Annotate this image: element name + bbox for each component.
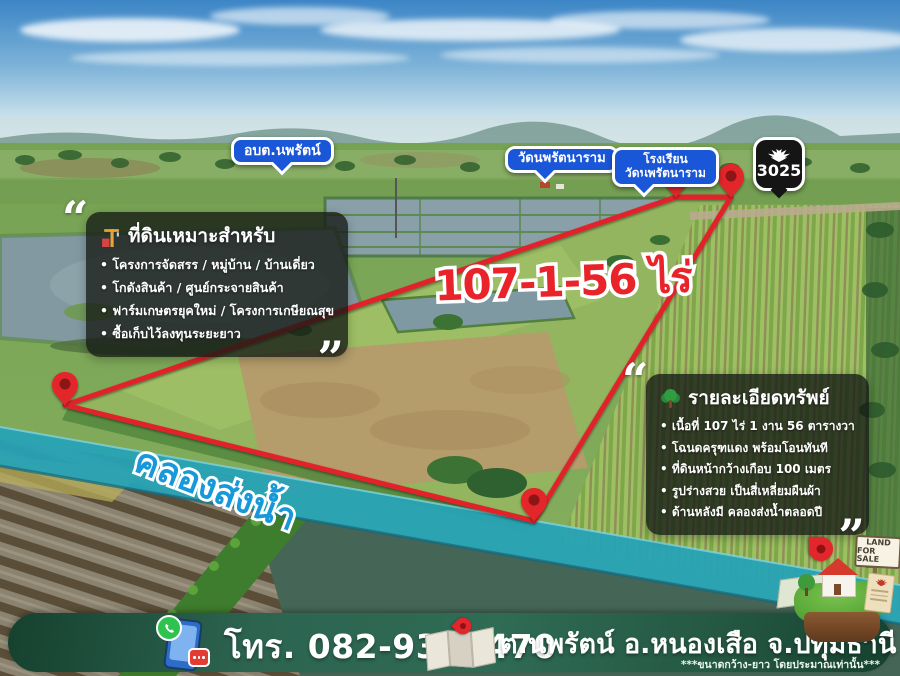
panel-title: รายละเอียดทรัพย์ — [688, 383, 830, 413]
contact-bar: โทร. 082-9385470 ต.นพรัตน์ อ.หนองเสือ จ.… — [8, 613, 892, 672]
title-deed-icon — [864, 572, 895, 613]
map-label-text: โรงเรียน — [625, 153, 706, 167]
tree-icon — [660, 388, 681, 409]
quote-close-icon: ” — [318, 340, 344, 377]
crane-icon — [100, 226, 121, 247]
area-size-text: 107-1-56 ไร่ — [433, 252, 694, 310]
map-pin-icon — [809, 537, 833, 561]
list-item: ด้านหลังมี คลองส่งน้ำตลอดปี — [660, 503, 855, 522]
call-badge-icon — [156, 615, 182, 641]
canal-label: คลองส่งน้ำ — [129, 434, 305, 540]
map-label-text: วัดนพรัตนาราม — [625, 167, 706, 181]
map-label-school: โรงเรียน วัดนพรัตนาราม — [612, 147, 719, 194]
map-label-obt: อบต.นพรัตน์ — [231, 137, 334, 172]
list-item: โฉนดครุฑแดง พร้อมโอนทันที — [660, 439, 855, 458]
island-soil — [804, 612, 880, 642]
property-details-panel: “ รายละเอียดทรัพย์ เนื้อที่ 107 ไร่ 1 งา… — [646, 374, 869, 535]
list-item: โกดังสินค้า / ศูนย์กระจายสินค้า — [100, 278, 334, 298]
smartphone-icon — [156, 617, 208, 669]
land-sale-illustration: LAND FOR SALE — [778, 530, 900, 650]
land-for-sale-sign: LAND FOR SALE — [854, 535, 900, 569]
chat-badge-icon — [188, 648, 210, 667]
quote-open-icon: “ — [62, 200, 88, 237]
panel-title: ที่ดินเหมาะสำหรับ — [128, 221, 275, 251]
map-label-text: วัดนพรัตนาราม — [505, 146, 619, 173]
map-icon — [426, 619, 490, 667]
route-number: 3025 — [757, 163, 802, 179]
list-item: เนื้อที่ 107 ไร่ 1 งาน 56 ตารางวา — [660, 417, 855, 436]
route-shield: 3025 — [753, 137, 805, 196]
map-label-temple: วัดนพรัตนาราม — [505, 146, 619, 180]
list-item: ฟาร์มเกษตรยุคใหม่ / โครงการเกษียณสุข — [100, 301, 334, 321]
sign-line2: FOR SALE — [856, 547, 899, 567]
canal-label-overlay: คลองส่งน้ำ — [118, 428, 398, 558]
suitable-for-panel: “ ที่ดินเหมาะสำหรับ โครงการจัดสรร / หมู่… — [86, 212, 348, 357]
quote-open-icon: “ — [622, 362, 648, 399]
disclaimer-text: ***ขนาดกว้าง-ยาว โดยประมาณเท่านั้น*** — [618, 656, 880, 673]
list-item: ซื้อเก็บไว้ลงทุนระยะยาว — [100, 324, 334, 344]
land-sale-poster: อบต.นพรัตน์ วัดนพรัตนาราม โรงเรียน วัดนพ… — [0, 0, 900, 676]
list-item: โครงการจัดสรร / หมู่บ้าน / บ้านเดี่ยว — [100, 255, 334, 275]
area-size-overlay: 107-1-56 ไร่ — [428, 248, 698, 314]
list-item: รูปร่างสวย เป็นสี่เหลี่ยมผืนผ้า — [660, 482, 855, 501]
list-item: ที่ดินหน้ากว้างเกือบ 100 เมตร — [660, 460, 855, 479]
